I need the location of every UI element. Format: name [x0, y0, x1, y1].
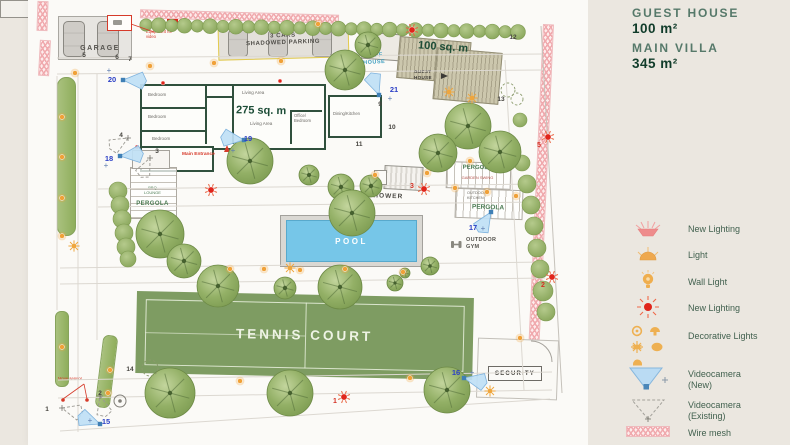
living-area-label: Living Area: [242, 90, 292, 95]
wire-mesh-icon: [626, 426, 670, 437]
garage-label: GARAGE: [70, 45, 130, 53]
security-label: SECURITY: [495, 371, 535, 377]
bedroom-label: Bedroom: [148, 114, 192, 119]
info-panel: GUEST HOUSE 100 m² MAIN VILLA 345 m² New…: [588, 0, 790, 445]
tennis-court-label: TENNIS COURT: [135, 291, 474, 380]
guest-house-title: GUEST HOUSE: [632, 6, 739, 20]
garden-swing-label: GARDEN SWING: [447, 176, 508, 181]
new-lighting-lamp-icon: [626, 219, 670, 239]
main-entrance-label: Main Entrance: [182, 152, 238, 158]
entrance-arrow-icon: [224, 145, 230, 152]
new-lighting-red-icon: [626, 295, 670, 319]
pergola-label: PERGOLA: [130, 201, 175, 208]
video-equipment-marker: [167, 19, 178, 28]
outdoor-kitchen-label: OUTDOOR KITCHEN: [467, 191, 511, 200]
camera-icon: [113, 20, 122, 25]
villa-wall: [142, 130, 205, 132]
videocamera-existing-icon: [626, 396, 670, 422]
legend-label: Light: [688, 250, 788, 261]
wall-light-icon: [626, 269, 670, 291]
tennis-court: TENNIS COURT: [135, 291, 474, 380]
villa-wall: [232, 86, 234, 144]
legend-label: Videocamera (New): [688, 369, 788, 392]
villa-wall: [205, 86, 207, 144]
light-icon: [626, 245, 670, 263]
dining-kitchen-label: Dining/Kitchen: [333, 111, 377, 116]
legend-label: Decorative Lights: [688, 331, 788, 342]
decorative-lights-icon: [626, 324, 670, 368]
villa-dining-wing: [328, 95, 382, 138]
legend-label: New Lighting: [688, 224, 788, 235]
bedroom-label: Bedroom: [152, 136, 196, 141]
outdoor-gym-label: OUTDOOR GYM: [466, 237, 518, 250]
bbq-counter: [132, 150, 170, 169]
hedge-strip-left: [57, 77, 76, 236]
security-label-box: SECURITY: [488, 366, 542, 381]
pool-label: POOL: [335, 237, 368, 246]
move-sensor-label: Move sensor: [58, 376, 104, 381]
site-plan-screenshot: GARAGE Equipment for video 3 CARS SHADOW…: [0, 0, 790, 445]
wire-mesh-left-upper: [36, 1, 48, 31]
guest-house-label: GUEST HOUSE: [414, 69, 444, 80]
shower-cabin: [374, 170, 387, 185]
legend-label: Videocamera (Existing): [688, 400, 788, 423]
office-bedroom-label: Office/ Bedroom: [294, 113, 324, 123]
videocamera-new-icon: [626, 364, 670, 392]
wire-mesh-sample: [626, 426, 670, 437]
villa-wall: [142, 107, 205, 109]
bbq-lounge-label: BBQ LOUNGE: [130, 186, 175, 196]
legend-label: Wire mesh: [688, 428, 788, 439]
legend-label: New Lighting: [688, 303, 788, 314]
main-villa-title: MAIN VILLA: [632, 41, 719, 55]
bedroom-label: Bedroom: [148, 92, 192, 97]
legend-label: Wall Light: [688, 277, 788, 288]
video-equipment-box: [107, 15, 132, 31]
pool: POOL: [286, 220, 417, 262]
villa-wall: [207, 96, 232, 98]
wire-mesh-left-lower: [38, 40, 51, 77]
pergola-label: PERGOLA: [447, 164, 508, 172]
main-villa-area-value: 345 m²: [632, 56, 678, 71]
guest-house-arrow-icon: [441, 73, 448, 79]
equipment-label: Equipment for video: [146, 29, 190, 39]
shower-structure: [383, 165, 423, 191]
living-area-label: Living Area: [250, 121, 300, 126]
guest-house-area-value: 100 m²: [632, 21, 678, 36]
